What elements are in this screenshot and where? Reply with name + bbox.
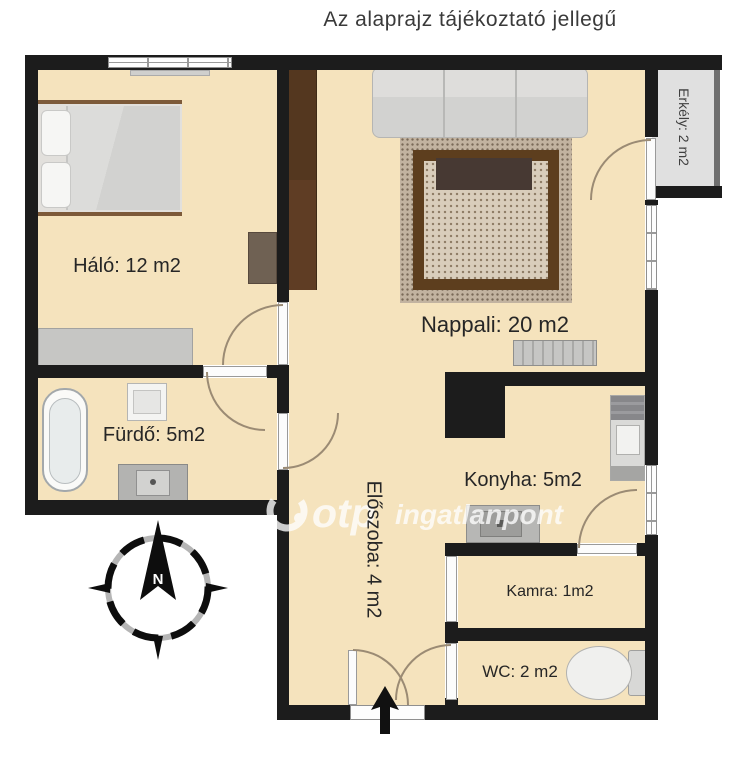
- vector-overlay: N otp ingatlanpont: [0, 0, 741, 768]
- balcony-door-swing: [591, 140, 651, 200]
- compass-west-tick: [88, 583, 110, 593]
- entrance-arrow: [371, 686, 399, 734]
- room-label-wc: WC: 2 m2: [450, 662, 590, 682]
- bedroom-door-swing: [223, 305, 283, 365]
- watermark-brand-text: ingatlanpont: [395, 499, 565, 530]
- kitchen-door-swing: [579, 490, 637, 548]
- hallway-bath-door-swing: [283, 413, 338, 468]
- compass-north-label: N: [153, 571, 164, 588]
- room-label-bedroom: Háló: 12 m2: [52, 255, 202, 278]
- room-label-balcony: Erkély: 2 m2: [676, 72, 692, 182]
- wc-door-swing: [396, 645, 451, 700]
- room-label-hallway: Előszoba: 4 m2: [362, 465, 385, 635]
- room-label-bathroom: Fürdő: 5m2: [79, 424, 229, 447]
- compass-south-tick: [153, 636, 163, 660]
- north-arrow: [140, 520, 176, 600]
- bathroom-door-swing: [207, 372, 265, 430]
- room-label-living: Nappali: 20 m2: [395, 312, 595, 338]
- watermark-logo-dot: [294, 513, 304, 523]
- room-label-kitchen: Konyha: 5m2: [443, 469, 603, 492]
- compass: N: [88, 520, 228, 660]
- room-label-pantry: Kamra: 1m2: [480, 583, 620, 601]
- watermark: otp ingatlanpont: [263, 487, 564, 536]
- floor-plan: Az alaprajz tájékoztató jellegű: [0, 0, 741, 768]
- compass-east-tick: [206, 583, 228, 593]
- watermark-logo-icon: [263, 487, 310, 534]
